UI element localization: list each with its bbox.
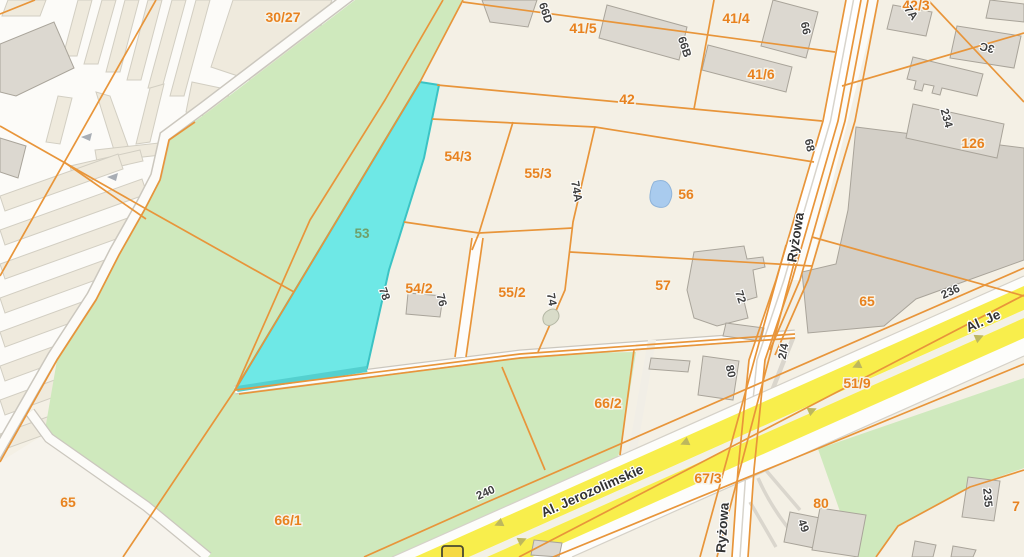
svg-text:55/3: 55/3 xyxy=(524,165,551,181)
svg-text:41/5: 41/5 xyxy=(569,20,596,36)
svg-text:235: 235 xyxy=(980,488,994,509)
svg-text:54/3: 54/3 xyxy=(444,148,471,164)
svg-text:65: 65 xyxy=(859,293,875,309)
svg-text:53: 53 xyxy=(354,226,370,241)
svg-text:51/9: 51/9 xyxy=(843,375,870,391)
svg-text:126: 126 xyxy=(961,135,985,151)
svg-text:57: 57 xyxy=(655,277,671,293)
svg-text:66/1: 66/1 xyxy=(274,512,301,528)
svg-text:56: 56 xyxy=(678,186,694,202)
svg-text:65: 65 xyxy=(60,494,76,510)
svg-text:80: 80 xyxy=(813,495,829,511)
svg-text:41/6: 41/6 xyxy=(747,66,774,82)
svg-text:41/4: 41/4 xyxy=(722,10,749,26)
svg-text:67/3: 67/3 xyxy=(694,470,721,486)
svg-text:54/2: 54/2 xyxy=(405,280,432,296)
svg-text:55/2: 55/2 xyxy=(498,284,525,300)
svg-text:7: 7 xyxy=(1012,498,1020,514)
svg-text:42: 42 xyxy=(619,91,635,107)
svg-text:66/2: 66/2 xyxy=(594,395,621,411)
svg-text:30/27: 30/27 xyxy=(265,9,300,25)
